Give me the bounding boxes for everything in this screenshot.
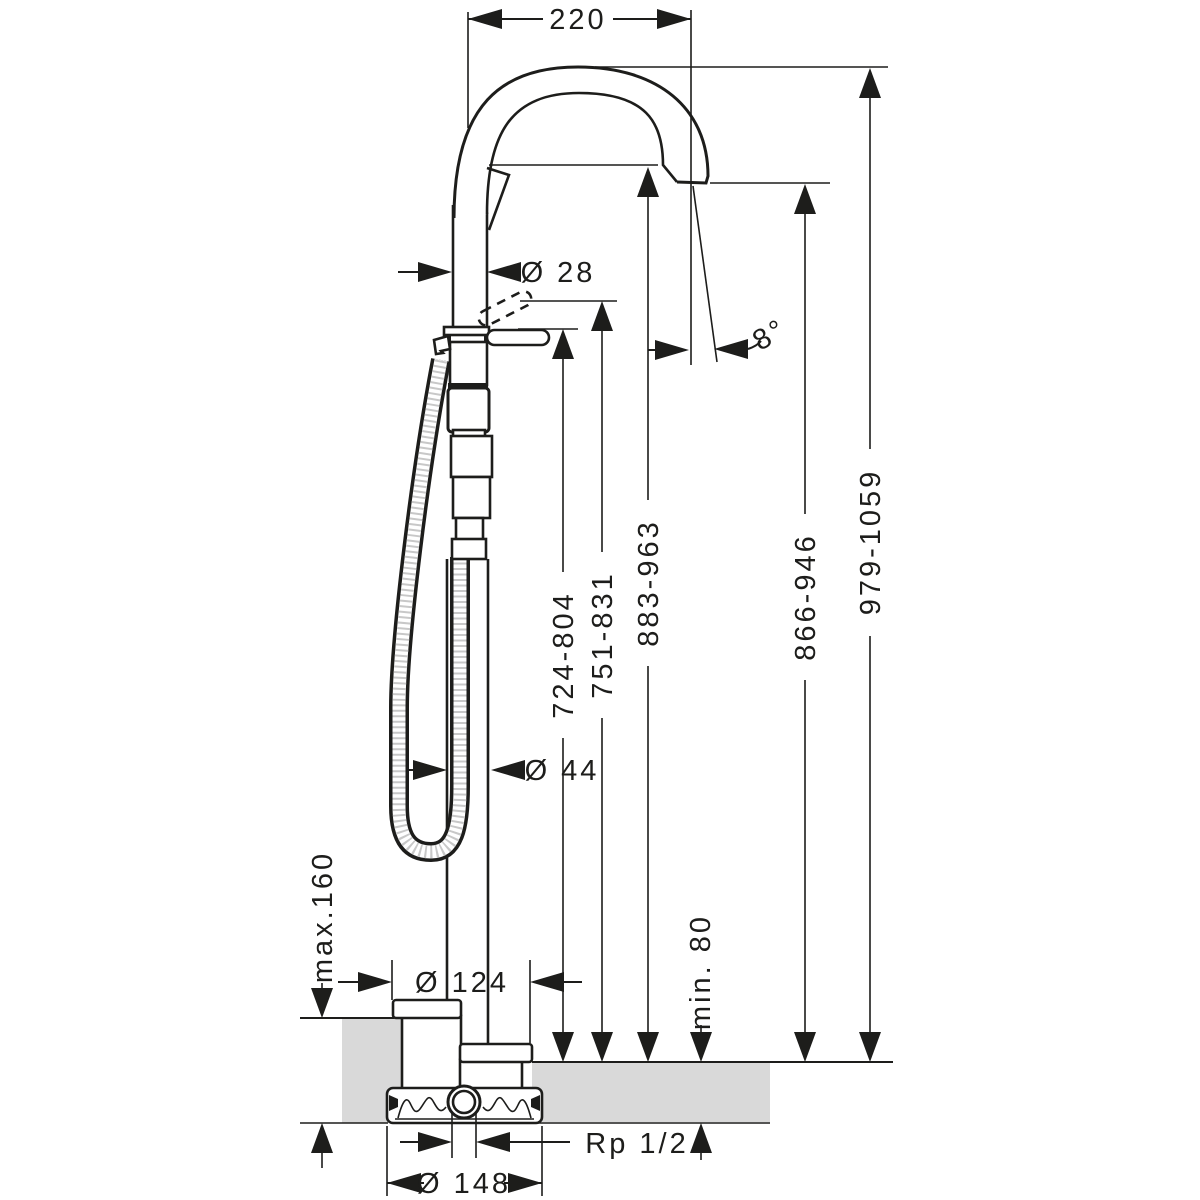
dim-spout-angle-label: 8° [747, 313, 792, 358]
arrowhead-down-icon [690, 1032, 712, 1062]
installation-body [387, 1086, 542, 1123]
dim-height-lever-raised-label: 751-831 [587, 571, 619, 698]
dim-floor-buildup-max: max.160 [307, 851, 339, 1168]
hose-connector-nut [452, 539, 486, 559]
arrowhead-down-icon [794, 1032, 816, 1062]
dim-height-outlet-label: 883-963 [633, 519, 665, 646]
body-mid-section [451, 436, 492, 477]
dim-pipe-diameter: Ø 28 [398, 257, 595, 289]
dim-installation-body-diameter-label: Ø 148 [417, 1168, 511, 1200]
body-upper-section [450, 342, 487, 385]
spout-outer-curve [454, 67, 708, 218]
hose-hook [434, 336, 450, 354]
arrowhead-left-icon [487, 262, 521, 282]
arrowhead-down-icon [637, 1032, 659, 1062]
body-cartridge-housing [448, 388, 489, 432]
arrowhead-up-icon [591, 301, 613, 331]
arrowhead-left-icon [476, 1132, 510, 1152]
dim-height-lever: 724-804 [518, 329, 580, 1062]
dim-height-lever-label: 724-804 [548, 591, 580, 718]
drawing-svg: 220 Ø 28 8° 724-804 751-831 [0, 0, 1200, 1200]
arrowhead-right-icon [358, 972, 392, 992]
arrowhead-left-icon [530, 972, 564, 992]
arrowhead-up-icon [690, 1123, 712, 1153]
dim-base-plate-diameter-label: Ø 124 [415, 967, 509, 999]
base-plate-high-floor [393, 1000, 461, 1018]
dimension-drawing-canvas: 220 Ø 28 8° 724-804 751-831 [0, 0, 1200, 1200]
dim-connection-thread-label: Rp 1/2 [585, 1128, 688, 1160]
dim-height-outlet-tip-label: 866-946 [790, 533, 822, 660]
spout-and-pipe [453, 67, 708, 332]
arrowhead-down-icon [859, 1032, 881, 1062]
dim-spout-angle: 8° [648, 186, 793, 362]
arrowhead-left-icon [714, 339, 748, 359]
arrowhead-down-icon [552, 1032, 574, 1062]
handle-lever [487, 330, 549, 345]
body-lower-section [453, 477, 490, 518]
dim-column-diameter: Ø 44 [408, 755, 599, 787]
arrowhead-left-icon [491, 760, 525, 780]
dim-column-diameter-label: Ø 44 [525, 755, 600, 787]
arrowhead-up-icon [552, 329, 574, 359]
mixer-body-and-handle [444, 289, 549, 542]
base-cover-left [402, 1016, 461, 1090]
dim-spout-reach-label: 220 [549, 4, 606, 36]
arrowhead-up-icon [794, 184, 816, 214]
dim-floor-buildup-max-label: max.160 [307, 851, 339, 983]
dim-floor-depth-min-label: min. 80 [685, 914, 717, 1030]
base-plate-low-floor [460, 1044, 532, 1062]
arrowhead-up-icon [311, 1123, 333, 1153]
dim-height-total-label: 979-1059 [855, 469, 887, 616]
arrowhead-down-icon [311, 988, 333, 1018]
floor-slab-right-low [532, 1063, 770, 1122]
angle-reference-line [693, 186, 717, 362]
arrowhead-right-icon [655, 340, 689, 360]
arrowhead-right-icon [657, 9, 691, 29]
dim-height-outlet-tip: 866-946 [710, 183, 830, 1062]
arrowhead-right-icon [418, 262, 452, 282]
arrowhead-left-icon [387, 1173, 421, 1193]
arrowhead-up-icon [859, 68, 881, 98]
arrowhead-left-icon [468, 9, 502, 29]
dim-installation-body-diameter: Ø 148 [387, 1126, 542, 1200]
dim-pipe-diameter-label: Ø 28 [521, 257, 596, 289]
arrowhead-right-icon [413, 760, 447, 780]
body-cap-plate [444, 327, 489, 335]
arrowhead-right-icon [508, 1173, 542, 1193]
arrowhead-down-icon [591, 1032, 613, 1062]
arrowhead-right-icon [418, 1132, 452, 1152]
